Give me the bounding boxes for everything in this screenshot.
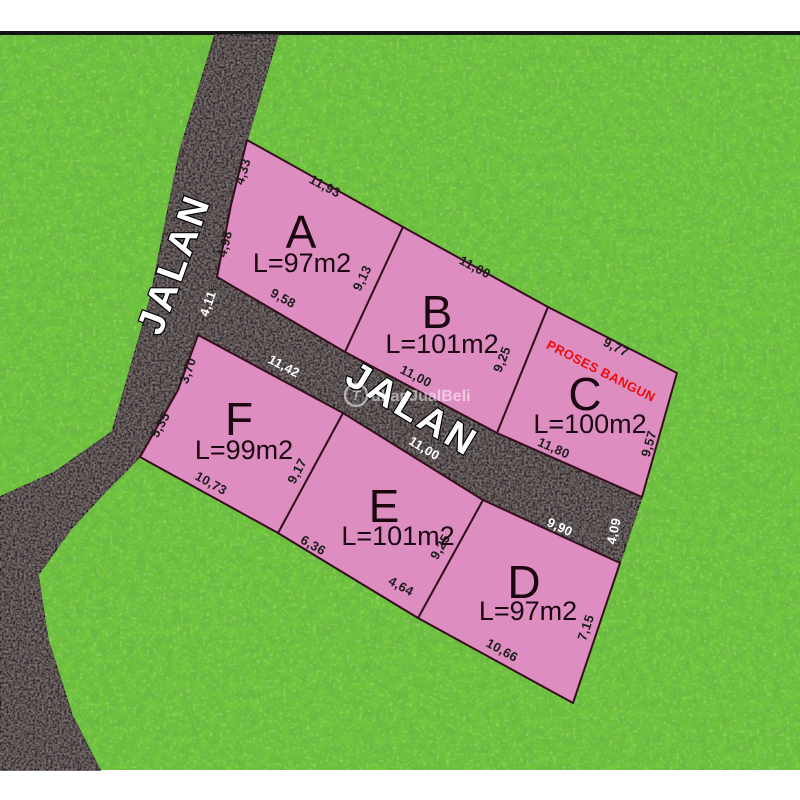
top-border-line xyxy=(0,31,800,35)
plot-b-area: L=101m2 xyxy=(385,329,498,359)
plot-d-area: L=97m2 xyxy=(479,596,577,626)
plot-a-area: L=97m2 xyxy=(253,248,351,278)
watermark-text: ubanJualBeli xyxy=(371,388,471,405)
site-plan-image: JALAN JALAN A B C D E F L=97m2 L=101m2 L… xyxy=(0,0,800,800)
plot-f-area: L=99m2 xyxy=(195,435,293,465)
site-plan-map: JALAN JALAN A B C D E F L=97m2 L=101m2 L… xyxy=(0,0,800,800)
watermark-logo-symbol: T xyxy=(352,387,362,403)
plot-c-area: L=100m2 xyxy=(533,409,646,439)
